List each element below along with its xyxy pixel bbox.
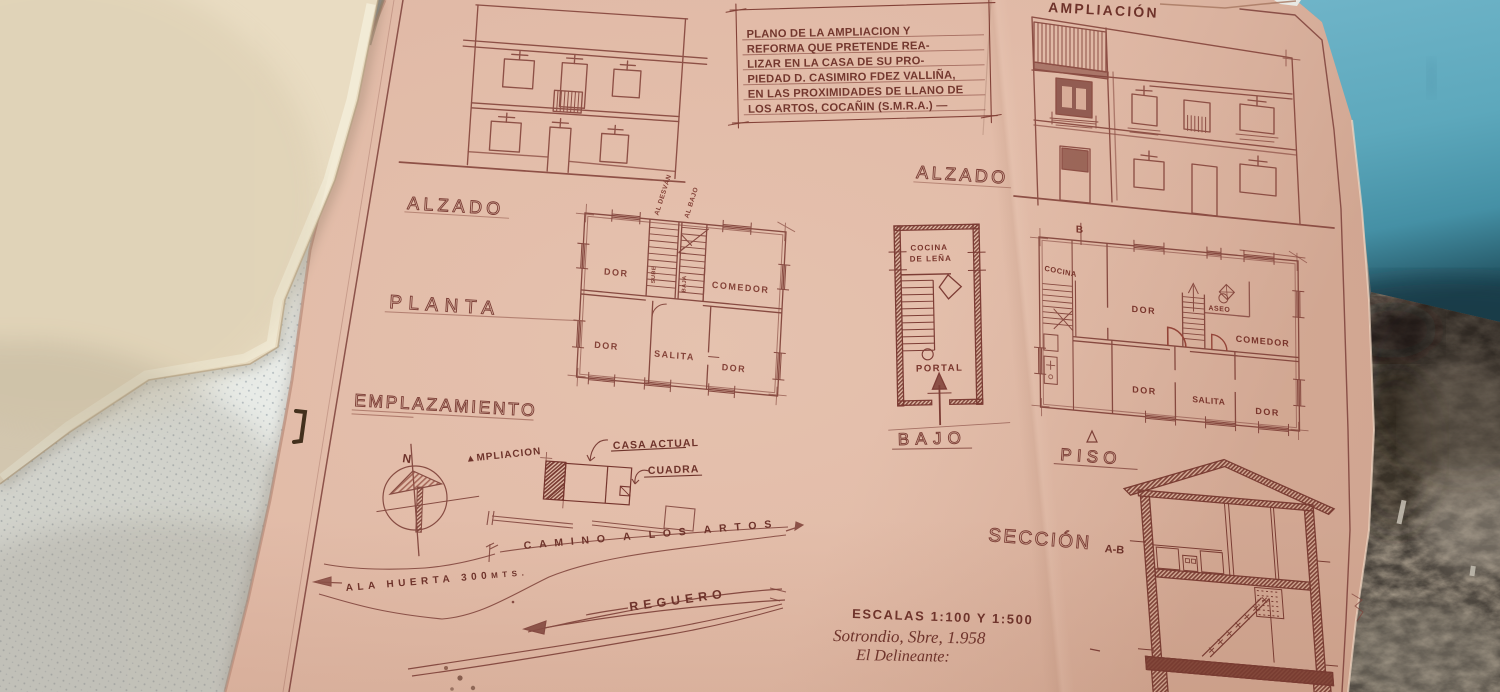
svg-text:BAJA: BAJA bbox=[681, 275, 688, 293]
svg-text:Sotrondio, Sbre, 1.958: Sotrondio, Sbre, 1.958 bbox=[833, 626, 986, 648]
svg-text:B: B bbox=[1076, 224, 1083, 236]
svg-text:El Delineante:: El Delineante: bbox=[855, 647, 950, 666]
svg-text:SUBE: SUBE bbox=[651, 266, 658, 284]
svg-text:BAJO: BAJO bbox=[898, 428, 968, 449]
svg-text:COCINA: COCINA bbox=[910, 243, 948, 253]
svg-text:A-B: A-B bbox=[1104, 543, 1124, 557]
svg-text:PORTAL: PORTAL bbox=[916, 363, 964, 375]
svg-text:DE LEÑA: DE LEÑA bbox=[910, 254, 952, 264]
